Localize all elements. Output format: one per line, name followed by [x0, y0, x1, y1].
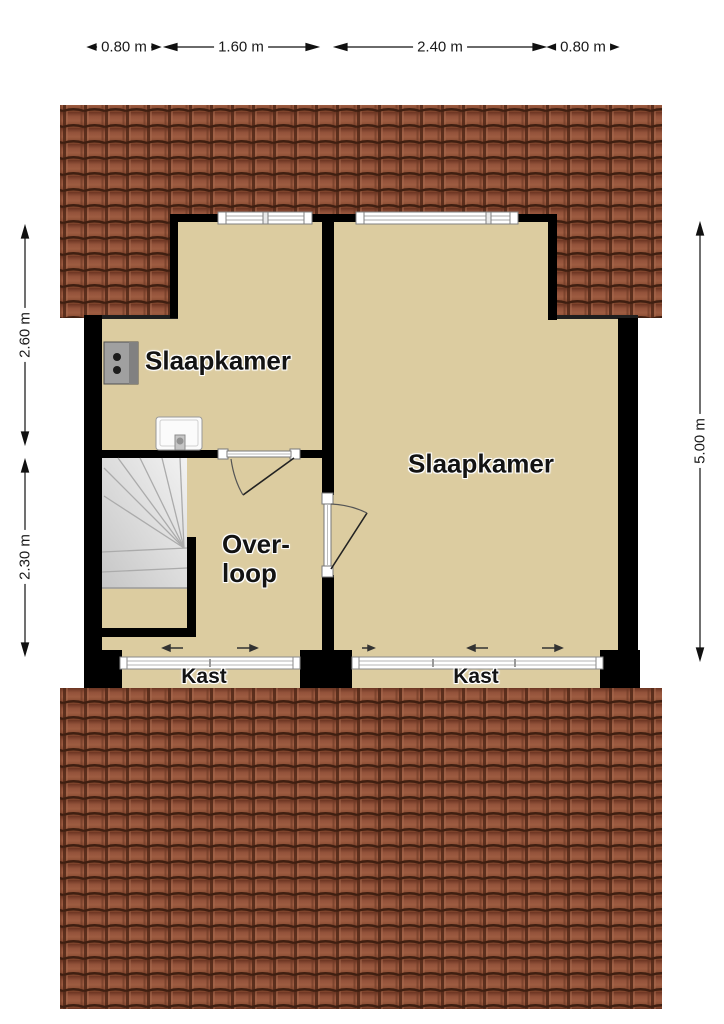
dim-label-left-2: 2.30 m	[17, 530, 34, 584]
dim-label-top-1: 0.80 m	[97, 39, 151, 56]
wall-dormer-left	[170, 214, 178, 318]
wall-outer-left	[84, 315, 102, 688]
floor-bedroom-left-upper	[178, 222, 322, 318]
roof-top	[60, 105, 662, 215]
dim-label-right-1: 5.00 m	[692, 414, 709, 468]
wall-bottom-left-block	[84, 650, 122, 688]
wall-bottom-right-block	[600, 650, 640, 688]
window-bedroom-right	[356, 212, 518, 224]
roof-upper-left	[60, 215, 170, 318]
heater-unit-icon	[104, 342, 138, 384]
wall-bedroom-left-a	[102, 450, 220, 458]
wall-bottom-center-block	[300, 650, 352, 688]
room-label-bedroom-left: Slaapkamer	[145, 346, 291, 377]
dim-label-top-2: 1.60 m	[214, 39, 268, 56]
dim-label-top-4: 0.80 m	[556, 39, 610, 56]
wall-stair-vertical	[187, 537, 196, 637]
dim-label-top-3: 2.40 m	[413, 39, 467, 56]
wall-stair-horizontal	[102, 628, 196, 637]
room-label-landing: Over- loop	[222, 530, 290, 588]
wall-upper-right	[548, 214, 557, 320]
floorplan-canvas: 0.80 m 1.60 m 2.40 m 0.80 m 2.60 m 2.30 …	[0, 0, 724, 1024]
room-label-bedroom-right: Slaapkamer	[408, 449, 554, 480]
windows	[218, 212, 518, 224]
room-label-closet-right: Kast	[453, 665, 499, 689]
room-label-landing-line1: Over-	[222, 530, 290, 559]
wall-bedroom-left-b	[300, 450, 322, 458]
wall-center-upper	[322, 222, 334, 495]
window-bedroom-left	[218, 212, 312, 224]
roof-bottom	[60, 688, 662, 1009]
floor-bedroom-right-upper	[334, 222, 548, 320]
dim-label-left-1: 2.60 m	[17, 308, 34, 362]
room-label-closet-left: Kast	[181, 665, 227, 689]
wall-outer-right	[618, 318, 638, 688]
sink-icon	[156, 417, 202, 450]
room-label-landing-line2: loop	[222, 559, 290, 588]
stairs	[102, 458, 187, 588]
roof-upper-right	[557, 215, 662, 318]
floorplan-drawing	[0, 0, 724, 1024]
